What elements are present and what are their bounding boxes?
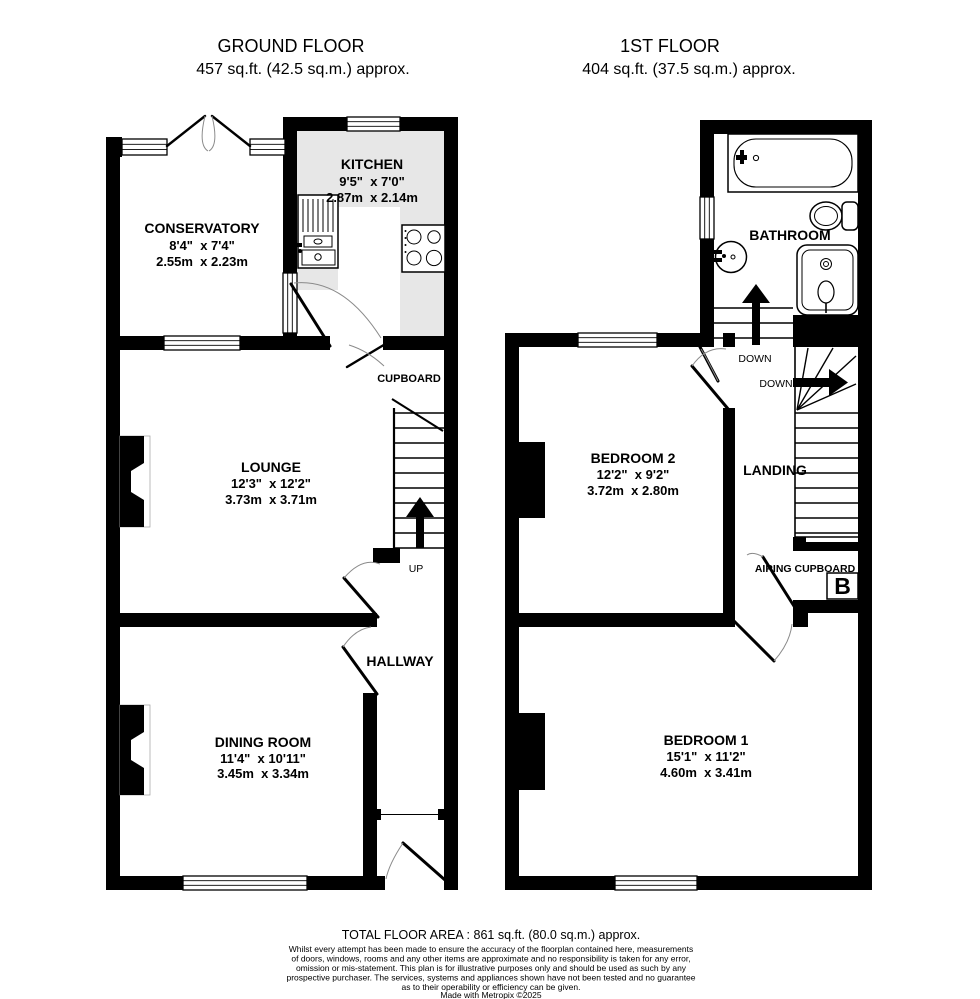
bedroom1-window <box>615 876 697 890</box>
bathroom-label: BATHROOM <box>749 227 830 243</box>
bathroom-window <box>700 197 714 239</box>
bedroom2-label: BEDROOM 2 <box>591 450 676 466</box>
lounge-dims-metric: 3.73m x 3.71m <box>225 492 317 507</box>
bedroom1-dims-imperial: 15'1" x 11'2" <box>666 749 745 764</box>
disclaimer-line: omission or mis-statement. This plan is … <box>296 963 687 973</box>
bedroom1-chimney-icon <box>519 713 545 790</box>
up-arrow-icon <box>742 284 770 303</box>
kitchen-window <box>347 117 400 131</box>
floorplan-drawing: GROUND FLOOR 457 sq.ft. (42.5 sq.m.) app… <box>0 0 980 999</box>
up-label: UP <box>409 563 424 575</box>
lounge-chimney-icon <box>120 436 150 527</box>
dining-room-dims-metric: 3.45m x 3.34m <box>217 766 309 781</box>
landing-label: LANDING <box>743 462 807 478</box>
disclaimer-line: Whilst every attempt has been made to en… <box>289 944 693 954</box>
conservatory-lounge-window <box>164 336 240 350</box>
airing-cupboard-label: AIRING CUPBOARD <box>755 563 856 575</box>
floorplan-page: GROUND FLOOR 457 sq.ft. (42.5 sq.m.) app… <box>0 0 980 999</box>
bedroom2-door-icon <box>692 366 729 410</box>
bedroom2-window <box>578 333 657 347</box>
boiler-symbol: B <box>827 573 858 599</box>
conservatory-label: CONSERVATORY <box>144 220 260 236</box>
hallway-label: HALLWAY <box>366 653 434 669</box>
down-arrow-icon <box>793 378 829 387</box>
first-floor-stairs <box>793 347 858 537</box>
dining-room-label: DINING ROOM <box>215 734 311 750</box>
first-floor-windows <box>578 197 714 890</box>
kitchen-conservatory-window <box>283 273 297 333</box>
cupboard-label: CUPBOARD <box>377 373 441 385</box>
down-label-1: DOWN <box>738 353 771 365</box>
bedroom1-label: BEDROOM 1 <box>664 732 749 748</box>
hob-icon <box>402 225 445 272</box>
ground-floor-plan: GROUND FLOOR 457 sq.ft. (42.5 sq.m.) app… <box>106 36 458 890</box>
bathtub-icon <box>728 134 858 192</box>
up-arrow-icon <box>406 497 434 517</box>
bedroom2-chimney-icon <box>519 442 545 518</box>
kitchen-dims-imperial: 9'5" x 7'0" <box>339 174 405 189</box>
bedroom2-dims-metric: 3.72m x 2.80m <box>587 483 679 498</box>
bedroom1-door-icon <box>733 620 774 661</box>
lounge-dims-imperial: 12'3" x 12'2" <box>231 476 311 491</box>
bedroom2-dims-imperial: 12'2" x 9'2" <box>597 467 670 482</box>
dining-room-dims-imperial: 11'4" x 10'11" <box>220 751 306 766</box>
kitchen-label: KITCHEN <box>341 156 403 172</box>
disclaimer-line: of doors, windows, rooms and any other i… <box>291 954 690 964</box>
boiler-letter: B <box>834 573 851 599</box>
first-floor-area: 404 sq.ft. (37.5 sq.m.) approx. <box>582 61 795 78</box>
front-door-icon <box>403 843 445 880</box>
ground-floor-area: 457 sq.ft. (42.5 sq.m.) approx. <box>196 61 409 78</box>
down-label-2: DOWN <box>759 378 792 390</box>
kitchen-dims-metric: 2.87m x 2.14m <box>326 190 418 205</box>
shower-icon <box>797 245 858 315</box>
toilet-icon <box>810 202 858 230</box>
total-floor-area: TOTAL FLOOR AREA : 861 sq.ft. (80.0 sq.m… <box>342 928 641 942</box>
dining-room-window <box>183 876 307 890</box>
ground-floor-title: GROUND FLOOR <box>217 36 364 56</box>
basin-icon <box>714 242 747 273</box>
sink-icon <box>293 195 338 268</box>
lounge-door-icon <box>344 578 378 617</box>
first-floor-plan: 1ST FLOOR 404 sq.ft. (37.5 sq.m.) approx… <box>505 36 872 890</box>
footer: TOTAL FLOOR AREA : 861 sq.ft. (80.0 sq.m… <box>286 928 695 999</box>
french-doors-icon <box>167 116 250 151</box>
bedroom1-dims-metric: 4.60m x 3.41m <box>660 765 752 780</box>
dining-chimney-icon <box>120 705 150 795</box>
credit-line: Made with Metropix ©2025 <box>440 990 542 999</box>
ground-floor-stairs <box>392 399 444 548</box>
conservatory-dims-imperial: 8'4" x 7'4" <box>169 238 235 253</box>
lounge-label: LOUNGE <box>241 459 301 475</box>
first-floor-title: 1ST FLOOR <box>620 36 720 56</box>
conservatory-dims-metric: 2.55m x 2.23m <box>156 254 248 269</box>
disclaimer-line: prospective purchaser. The services, sys… <box>286 973 695 983</box>
